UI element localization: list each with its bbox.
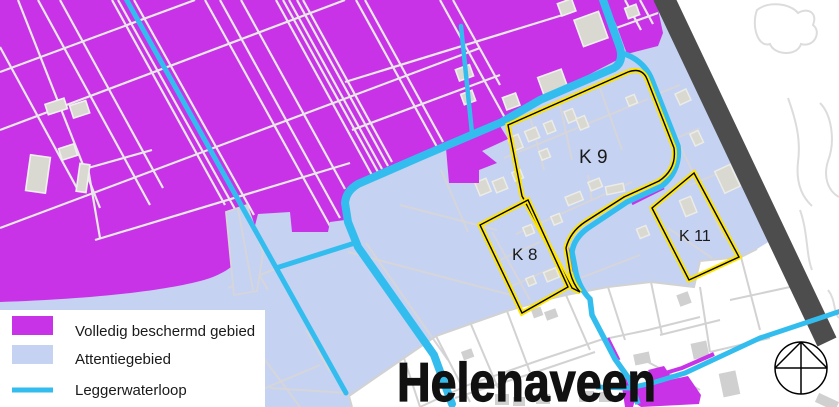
svg-text:K 8: K 8 bbox=[512, 245, 538, 264]
svg-text:Leggerwaterloop: Leggerwaterloop bbox=[75, 382, 187, 399]
svg-text:K 11: K 11 bbox=[679, 228, 711, 245]
svg-text:Volledig beschermd gebied: Volledig beschermd gebied bbox=[75, 323, 255, 340]
svg-text:Helenaveen: Helenaveen bbox=[397, 351, 656, 407]
svg-text:K 9: K 9 bbox=[579, 147, 608, 168]
svg-text:Attentiegebied: Attentiegebied bbox=[75, 351, 171, 368]
